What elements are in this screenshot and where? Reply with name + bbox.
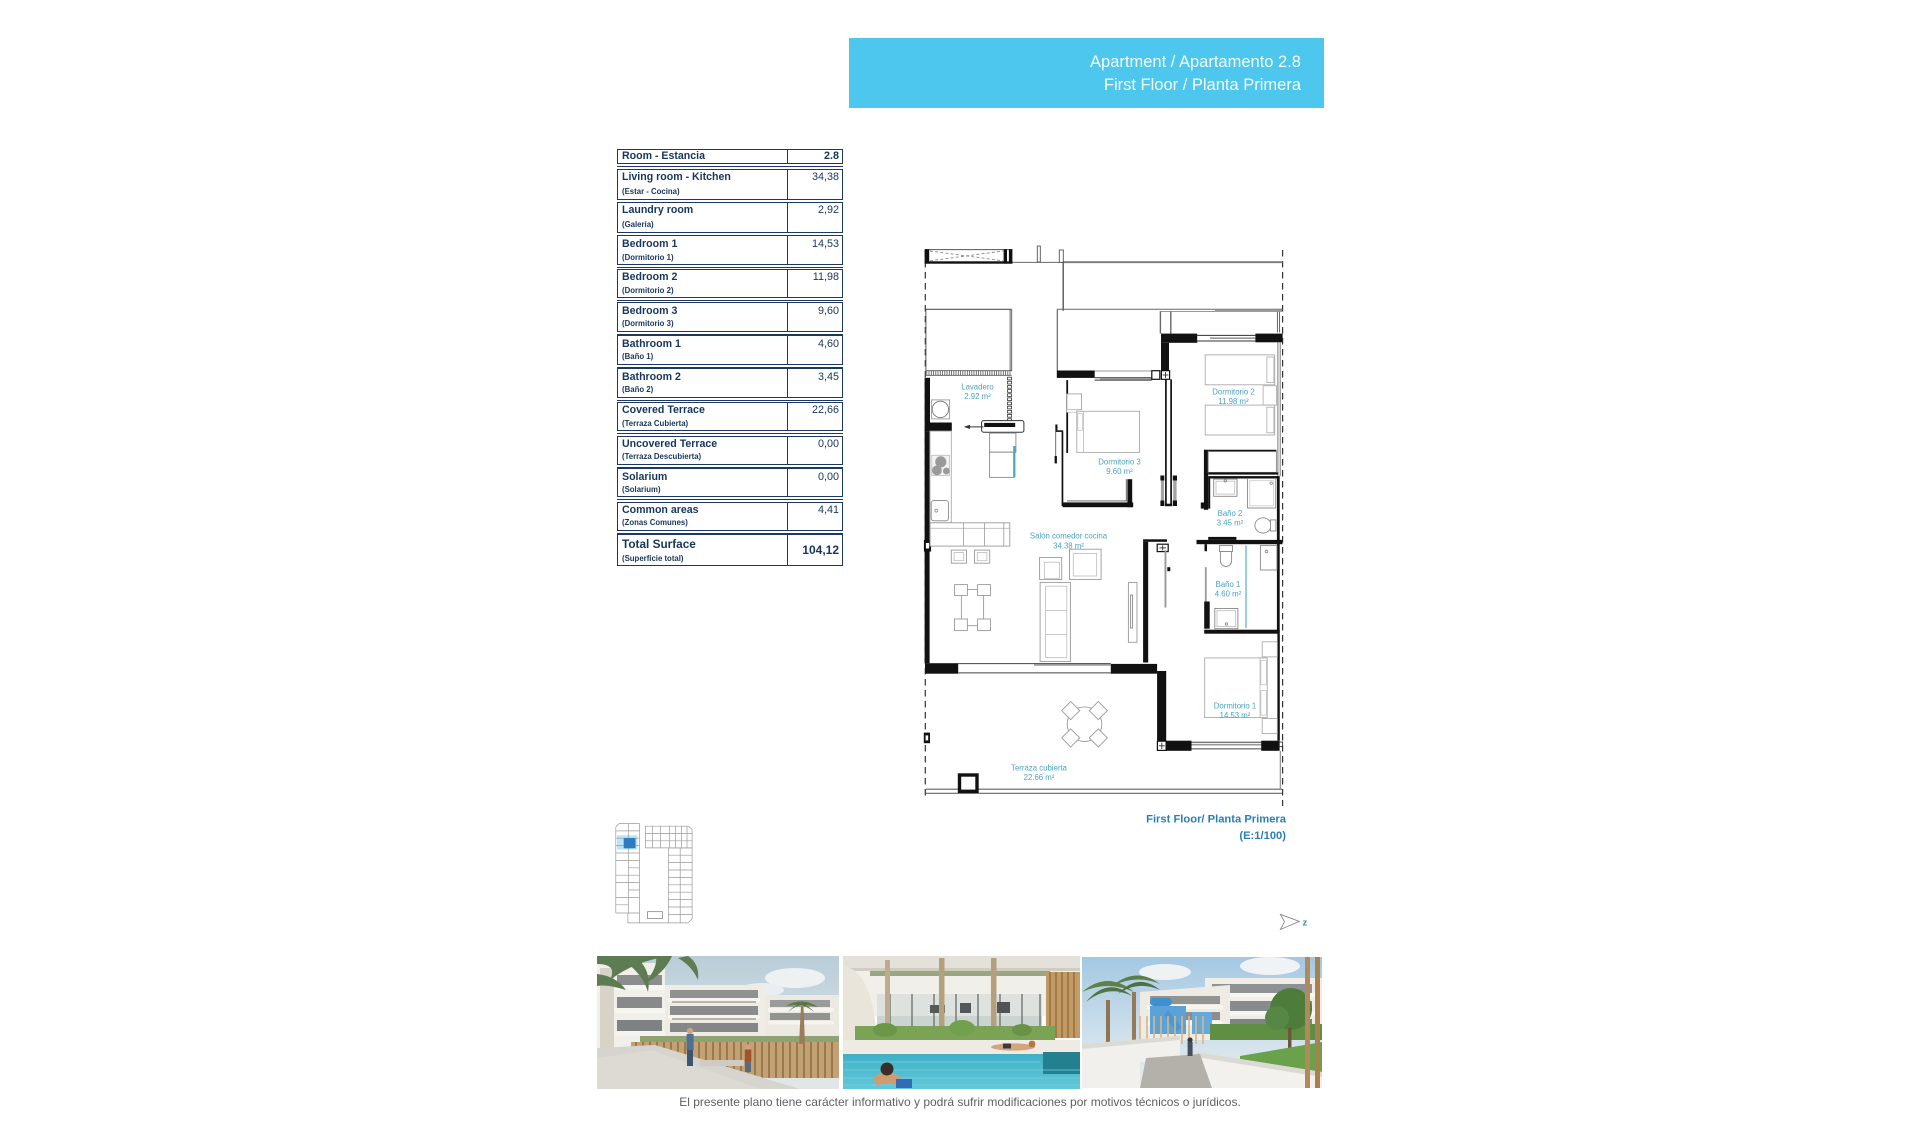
svg-text:4.60 m²: 4.60 m² — [1215, 590, 1242, 599]
svg-text:First Floor/ Planta Primera: First Floor/ Planta Primera — [1146, 814, 1287, 826]
svg-text:Salón comedor cocina: Salón comedor cocina — [1030, 532, 1108, 541]
svg-text:Terraza cubierta: Terraza cubierta — [1011, 764, 1068, 773]
svg-text:11.98 m²: 11.98 m² — [1218, 397, 1249, 406]
svg-text:Dormitorio 2: Dormitorio 2 — [1212, 388, 1254, 397]
svg-text:34.38 m²: 34.38 m² — [1053, 542, 1084, 551]
svg-text:22.66 m²: 22.66 m² — [1024, 773, 1055, 782]
svg-text:2.92 m²: 2.92 m² — [964, 392, 991, 401]
svg-text:Dormitorio 1: Dormitorio 1 — [1214, 702, 1256, 711]
svg-text:3.45 m²: 3.45 m² — [1217, 519, 1244, 528]
svg-text:14.53 m²: 14.53 m² — [1220, 711, 1251, 720]
svg-text:Dormitorio 3: Dormitorio 3 — [1098, 458, 1140, 467]
svg-text:Baño 2: Baño 2 — [1218, 509, 1243, 518]
svg-text:Baño 1: Baño 1 — [1216, 580, 1241, 589]
svg-text:Lavadero: Lavadero — [961, 383, 994, 392]
svg-text:z: z — [1303, 918, 1308, 929]
svg-text:9.60 m²: 9.60 m² — [1106, 467, 1133, 476]
svg-text:(E:1/100): (E:1/100) — [1239, 830, 1286, 842]
